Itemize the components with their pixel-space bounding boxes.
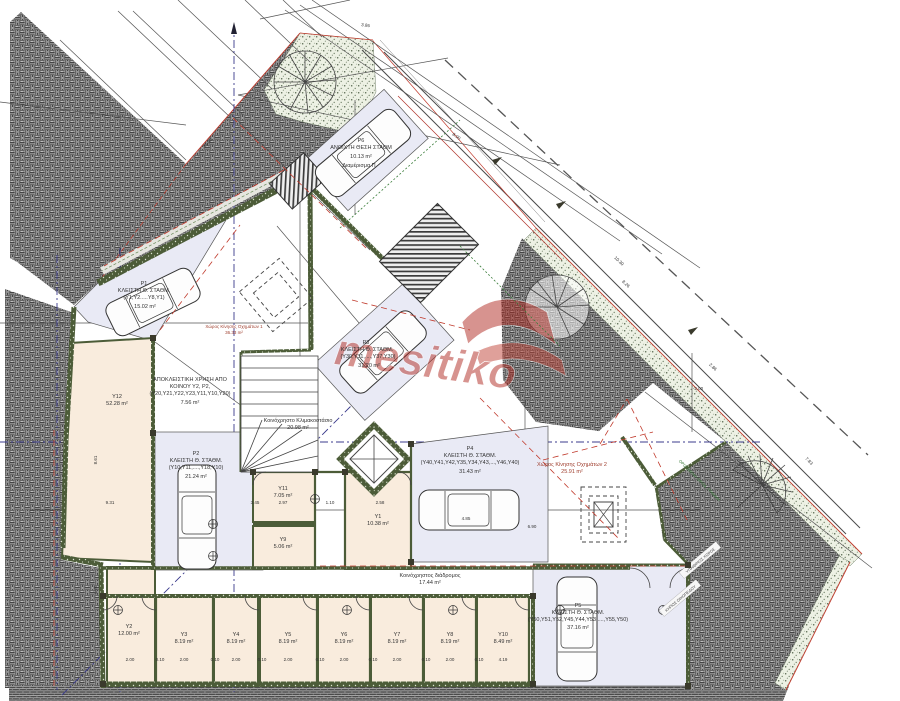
svg-text:0.10: 0.10 (316, 657, 325, 662)
svg-text:2.00: 2.00 (126, 657, 135, 662)
svg-text:(Υ1,Υ2.....Υ8,Υ1): (Υ1,Υ2.....Υ8,Υ1) (123, 295, 164, 301)
svg-text:8.19 m²: 8.19 m² (227, 639, 246, 645)
svg-text:0.10: 0.10 (422, 657, 431, 662)
svg-text:31.20 m²: 31.20 m² (358, 363, 380, 369)
svg-text:12.00 m²: 12.00 m² (118, 631, 140, 637)
svg-text:P6: P6 (358, 138, 365, 144)
svg-text:1.10: 1.10 (326, 500, 335, 505)
svg-text:0.10: 0.10 (258, 657, 267, 662)
svg-text:ΚΟΙΝΟΥ Υ2, Ρ2,: ΚΟΙΝΟΥ Υ2, Ρ2, (170, 384, 211, 390)
svg-text:Υ3: Υ3 (181, 632, 188, 638)
svg-text:Υ12: Υ12 (112, 394, 122, 400)
svg-text:15.02 m²: 15.02 m² (134, 304, 156, 310)
svg-text:Υ6: Υ6 (341, 632, 348, 638)
svg-text:25.91 m²: 25.91 m² (561, 469, 583, 475)
svg-text:0.10: 0.10 (369, 657, 378, 662)
svg-text:8.19 m²: 8.19 m² (441, 639, 460, 645)
svg-text:8.61: 8.61 (93, 455, 98, 464)
svg-text:8.19 m²: 8.19 m² (335, 639, 354, 645)
svg-text:2.00: 2.00 (340, 657, 349, 662)
svg-text:2.00: 2.00 (180, 657, 189, 662)
svg-text:2.00: 2.00 (284, 657, 293, 662)
svg-text:17.44 m²: 17.44 m² (419, 580, 441, 586)
svg-text:7.05 m²: 7.05 m² (274, 493, 293, 499)
svg-text:6.90: 6.90 (528, 524, 537, 529)
svg-text:20.98 m²: 20.98 m² (287, 425, 309, 431)
svg-text:2.58: 2.58 (376, 500, 385, 505)
svg-text:ΚΛΕΙΣΤΗ Θ. ΣΤΑΘΜ.: ΚΛΕΙΣΤΗ Θ. ΣΤΑΘΜ. (341, 347, 394, 353)
svg-text:8.19 m²: 8.19 m² (279, 639, 298, 645)
svg-text:ΑΠΟΚΛΕΙΣΤΙΚΗ ΧΡΗΣΗ ΑΠΟ: ΑΠΟΚΛΕΙΣΤΙΚΗ ΧΡΗΣΗ ΑΠΟ (153, 377, 227, 383)
svg-text:(Υ10,Υ11,....,Υ18,Υ10): (Υ10,Υ11,....,Υ18,Υ10) (169, 465, 224, 471)
svg-text:Υ11: Υ11 (278, 486, 287, 492)
svg-text:Χώρος Κίνησης Οχημάτων 2: Χώρος Κίνησης Οχημάτων 2 (537, 461, 607, 468)
svg-text:31.43 m²: 31.43 m² (459, 469, 481, 475)
svg-text:5.06 m²: 5.06 m² (274, 544, 293, 550)
svg-text:Υ9: Υ9 (280, 537, 287, 543)
svg-text:Κοινόχρηστος διάδρομος: Κοινόχρηστος διάδρομος (400, 572, 461, 579)
svg-text:ΚΛΕΙΣΤΗ Θ. ΣΤΑΘΜ.: ΚΛΕΙΣΤΗ Θ. ΣΤΑΘΜ. (118, 288, 171, 294)
svg-text:2.00: 2.00 (232, 657, 241, 662)
svg-text:21.24 m²: 21.24 m² (185, 474, 207, 480)
svg-text:10.38 m²: 10.38 m² (367, 521, 389, 527)
svg-text:Υ8: Υ8 (447, 632, 454, 638)
svg-text:2.00: 2.00 (446, 657, 455, 662)
svg-text:ΚΛΕΙΣΤΗ Θ. ΣΤΑΘΜ.: ΚΛΕΙΣΤΗ Θ. ΣΤΑΘΜ. (444, 453, 497, 459)
svg-text:8.49 m²: 8.49 m² (494, 639, 513, 645)
svg-text:ΑΝΟΙΧΤΗ ΘΕΣΗ ΣΤΑΘΜ: ΑΝΟΙΧΤΗ ΘΕΣΗ ΣΤΑΘΜ (330, 145, 392, 151)
svg-text:2.97: 2.97 (279, 500, 288, 505)
svg-text:52.28 m²: 52.28 m² (106, 401, 128, 407)
svg-text:Υ2: Υ2 (126, 624, 133, 630)
svg-text:4.90: 4.90 (93, 585, 98, 594)
svg-text:(Υ50,Υ51,Υ52,Υ45,Υ44,Υ53,....,: (Υ50,Υ51,Υ52,Υ45,Υ44,Υ53,....,Υ55,Υ50) (528, 617, 628, 623)
svg-text:Υ1: Υ1 (375, 514, 382, 520)
svg-text:Υ4: Υ4 (233, 632, 240, 638)
svg-text:P1: P1 (141, 281, 148, 287)
svg-text:P5: P5 (575, 603, 582, 609)
svg-text:4.19: 4.19 (499, 657, 508, 662)
svg-text:0.10: 0.10 (475, 657, 484, 662)
svg-text:Χώρος Κίνησης Οχημάτων 1: Χώρος Κίνησης Οχημάτων 1 (205, 323, 263, 329)
svg-text:8.19 m²: 8.19 m² (388, 639, 407, 645)
svg-text:ΚΛΕΙΣΤΗ Θ. ΣΤΑΘΜ.: ΚΛΕΙΣΤΗ Θ. ΣΤΑΘΜ. (170, 458, 223, 464)
svg-text:2.00: 2.00 (393, 657, 402, 662)
svg-text:0.10: 0.10 (156, 657, 165, 662)
svg-text:(Υ30,Υ31,....,Υ37,Υ30): (Υ30,Υ31,....,Υ37,Υ30) (340, 354, 395, 360)
svg-text:4.85: 4.85 (462, 516, 471, 521)
svg-text:Υ5: Υ5 (285, 632, 292, 638)
svg-text:8.19 m²: 8.19 m² (175, 639, 194, 645)
svg-text:10.13 m²: 10.13 m² (350, 154, 372, 160)
svg-text:36.33 m²: 36.33 m² (225, 330, 243, 335)
svg-text:9.31: 9.31 (106, 500, 115, 505)
svg-text:Υ10: Υ10 (498, 632, 508, 638)
svg-text:7.56 m²: 7.56 m² (181, 400, 200, 406)
svg-text:P3: P3 (363, 340, 370, 346)
svg-text:-2.00: -2.00 (693, 386, 704, 391)
svg-text:Κοινόχρηστο Κλιμακοστάσιο: Κοινόχρηστο Κλιμακοστάσιο (264, 417, 333, 424)
svg-text:P2: P2 (193, 451, 200, 457)
svg-text:Υ7: Υ7 (394, 632, 401, 638)
svg-text:0.10: 0.10 (211, 657, 220, 662)
svg-text:3.45: 3.45 (251, 500, 260, 505)
svg-text:Διαμέρισμα Π: Διαμέρισμα Π (342, 162, 375, 169)
svg-text:P4: P4 (467, 446, 474, 452)
svg-text:(Υ20,Υ21,Υ22,Υ23,Υ11,Υ10,Υ20): (Υ20,Υ21,Υ22,Υ23,Υ11,Υ10,Υ20) (150, 391, 231, 397)
svg-text:37.16 m²: 37.16 m² (567, 625, 589, 631)
svg-text:(Υ40,Υ41,Υ42,Υ35,Υ34,Υ43,...,Υ: (Υ40,Υ41,Υ42,Υ35,Υ34,Υ43,...,Υ46,Υ40) (421, 460, 520, 466)
